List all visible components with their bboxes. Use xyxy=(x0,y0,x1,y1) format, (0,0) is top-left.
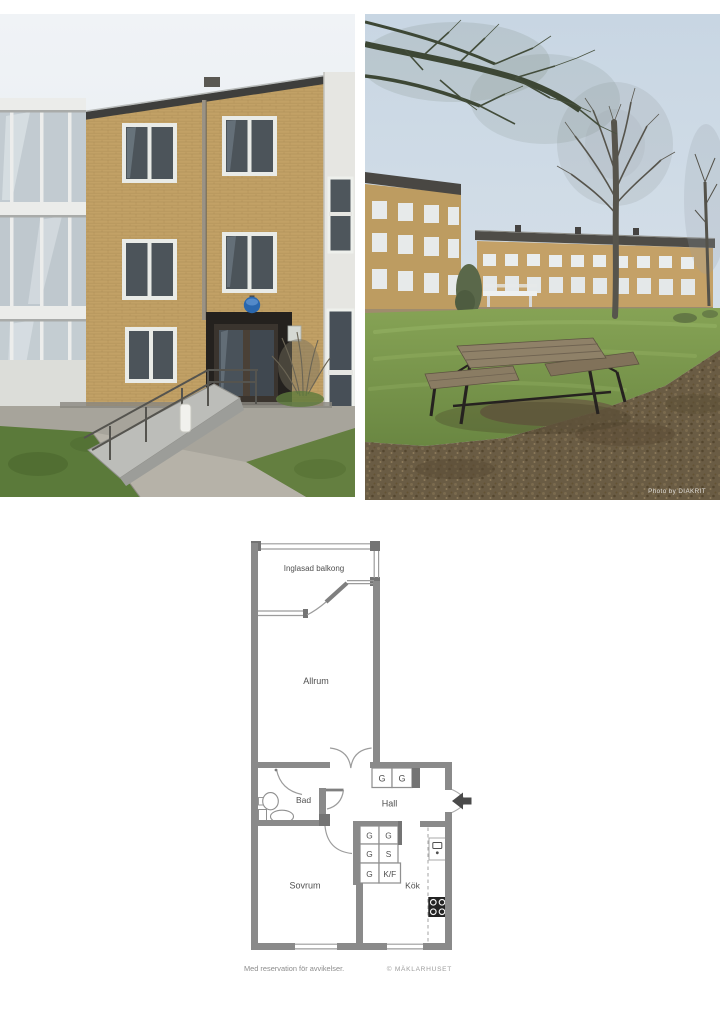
courtyard-photo-scene: Photo by DIAKRIT xyxy=(365,14,720,500)
closet-column: G G G S G K/F xyxy=(360,826,401,883)
disclaimer-text: Med reservation för avvikelser. xyxy=(244,964,344,973)
apartment-block-long xyxy=(475,225,715,311)
room-living: Allrum xyxy=(303,676,371,768)
bedroom-label: Sovrum xyxy=(289,881,320,891)
room-bathroom: Bad xyxy=(259,769,344,823)
kitchen-label: Kök xyxy=(405,881,420,891)
roof-vent xyxy=(204,77,220,87)
room-balcony: Inglasad balkong xyxy=(251,541,380,618)
room-hall: G G Hall xyxy=(372,768,472,813)
double-door-arcs xyxy=(330,748,372,768)
bollard xyxy=(180,404,191,432)
balcony-label: Inglasad balkong xyxy=(284,564,345,573)
living-room-label: Allrum xyxy=(303,676,329,686)
facade-photo-scene xyxy=(0,14,355,497)
pantry-label: S xyxy=(386,849,392,859)
apartment-block-left xyxy=(365,172,461,313)
bathroom-label: Bad xyxy=(296,795,311,805)
closet-label: G xyxy=(385,830,391,840)
room-bedroom: Sovrum xyxy=(289,826,352,891)
balcony-door-arc xyxy=(307,602,326,615)
floor-plan-drawing: Inglasad balkong Allrum Bad G G Hall G xyxy=(238,536,486,984)
closet-label: G xyxy=(378,774,385,784)
listing-media-sheet: { "photos": { "right_watermark": "Photo … xyxy=(0,0,720,1019)
floor-plan: Inglasad balkong Allrum Bad G G Hall G xyxy=(238,536,486,984)
closet-label: G xyxy=(398,774,405,784)
bedroom-door-arc xyxy=(325,826,352,854)
hall-label: Hall xyxy=(382,799,398,809)
closet-label: G xyxy=(366,849,372,859)
balcony-window-wall xyxy=(261,544,370,549)
broker-credit: © MÄKLARHUSET xyxy=(387,965,452,973)
courtyard-photo: Photo by DIAKRIT xyxy=(365,14,720,500)
sink-icon xyxy=(263,793,279,810)
balcony-door-leaf xyxy=(326,583,347,602)
fridge-freezer-label: K/F xyxy=(383,869,396,879)
glazed-balcony-stack xyxy=(0,98,86,423)
facade-photo xyxy=(0,14,355,497)
address-sign xyxy=(288,326,301,341)
photo-watermark: Photo by DIAKRIT xyxy=(648,488,706,495)
bathroom-door-arc xyxy=(277,770,303,795)
walls xyxy=(251,543,452,950)
drainpipe xyxy=(202,100,207,320)
closet-label: G xyxy=(366,830,372,840)
room-kitchen: Kök xyxy=(405,828,447,944)
closet-label: G xyxy=(366,869,372,879)
